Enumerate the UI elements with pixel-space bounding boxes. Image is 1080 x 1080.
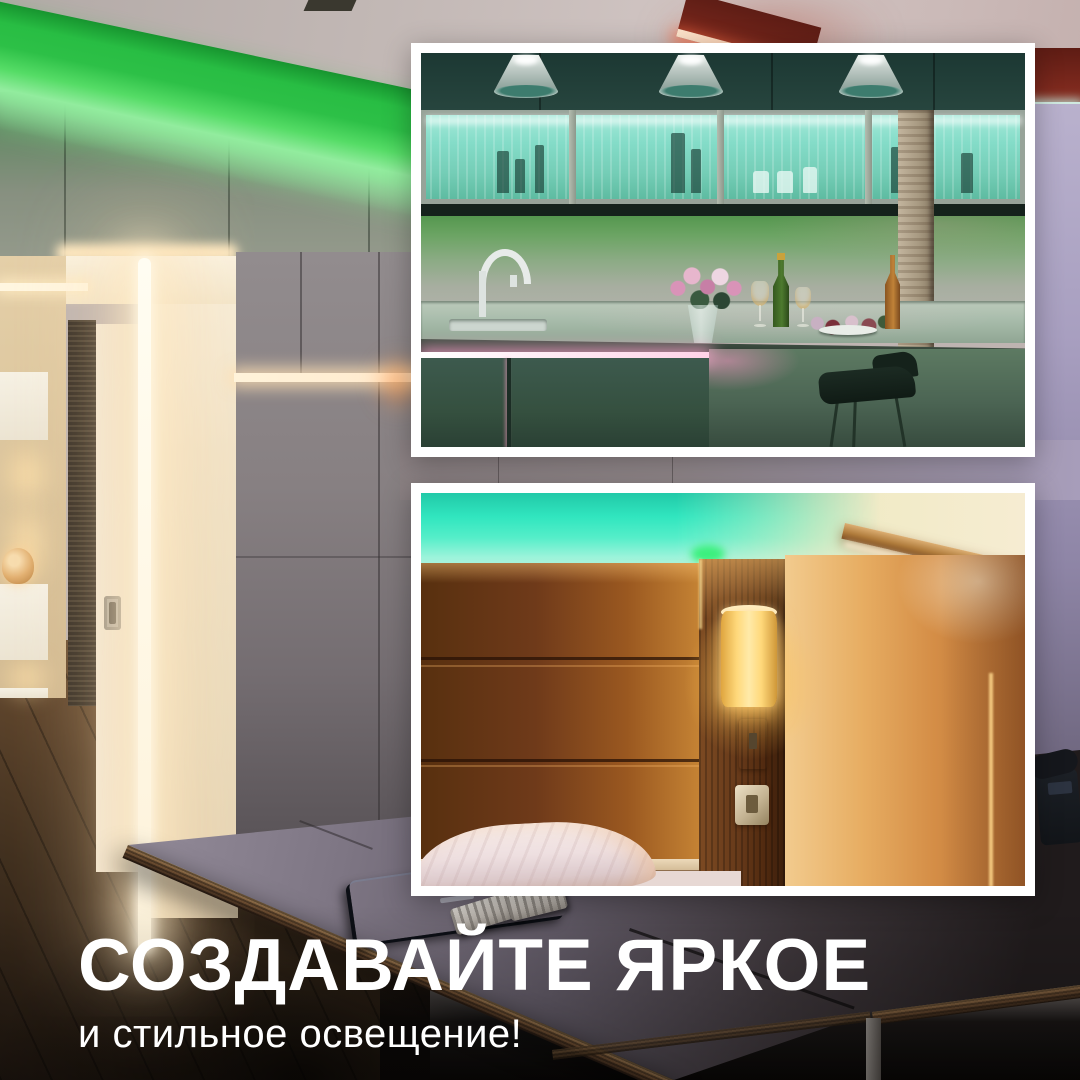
purple-wall: [1028, 104, 1080, 764]
lamp-glare: [859, 55, 883, 65]
glass-stem: [802, 308, 804, 322]
key-card-slot: [749, 733, 757, 749]
lamp-glare: [679, 55, 703, 65]
ceiling-vent: [304, 0, 357, 11]
sink: [449, 319, 547, 331]
pendant-lamp-rim: [494, 85, 558, 98]
ceramic-jar: [753, 171, 769, 193]
dark-textured-column: [68, 320, 96, 706]
desk-phone: [1030, 748, 1080, 860]
kitchen-photo-frame: [411, 43, 1035, 457]
ceramic-jar: [803, 167, 817, 193]
switch-rocker: [746, 795, 758, 813]
glassware: [691, 149, 701, 193]
bedroom-photo-frame: [411, 483, 1035, 896]
shelf-divider: [569, 110, 576, 204]
flower-bouquet: [667, 263, 745, 309]
cabinet-seam: [236, 556, 418, 558]
panel-seam: [933, 53, 935, 110]
hallway-wall: [150, 256, 238, 918]
faucet-spout: [510, 275, 517, 287]
phone-screen: [1048, 781, 1073, 795]
panel-seam: [771, 53, 773, 110]
glass-stem: [759, 305, 761, 322]
caption: СОЗДАВАЙТЕ ЯРКОЕ и стильное освещение!: [78, 929, 871, 1057]
cabinet-seam: [378, 252, 380, 838]
door-handle-recess: [109, 602, 116, 624]
niche-shelf: [0, 584, 48, 660]
red-led-cove: [1028, 48, 1080, 106]
glassware: [497, 151, 509, 193]
ceramic-jar: [777, 171, 793, 193]
tall-gray-cabinets: [236, 252, 418, 838]
shelf-divider: [717, 110, 724, 204]
glass-bowl: [795, 287, 811, 309]
cabinet-seam: [300, 252, 302, 380]
plates: [819, 325, 877, 335]
glassware: [515, 159, 525, 193]
glassware: [535, 145, 544, 193]
niche-shelf: [0, 372, 48, 440]
glassware: [961, 153, 973, 193]
headline: СОЗДАВАЙТЕ ЯРКОЕ: [78, 929, 871, 1003]
subheadline: и стильное освещение!: [78, 1012, 871, 1057]
promo-image: СОЗДАВАЙТЕ ЯРКОЕ и стильное освещение!: [0, 0, 1080, 1080]
faucet-pipe: [479, 271, 486, 317]
phone-base: [1035, 768, 1080, 845]
shelf-board: [421, 204, 1025, 216]
corner-highlight: [989, 673, 993, 886]
glass-bowl: [751, 281, 769, 306]
glass-foot: [754, 324, 767, 327]
pendant-lamp-rim: [839, 85, 903, 98]
bedroom-photo: [421, 493, 1025, 886]
glass-table-lamp: [2, 548, 34, 584]
niche-shelf: [0, 688, 48, 698]
shelf-divider: [865, 110, 872, 204]
pendant-lamp-rim: [659, 85, 723, 98]
glassware: [671, 133, 685, 193]
niche-led-strip: [0, 283, 88, 291]
corner-shadow: [941, 555, 1025, 886]
bottle-cap: [777, 253, 785, 260]
cabinet-seam: [507, 358, 511, 447]
lamp-glare: [514, 55, 538, 65]
kitchen-photo: [421, 53, 1025, 447]
wall-sconce-lamp: [721, 611, 777, 707]
base-cabinets: [421, 358, 709, 447]
wine-glass: [751, 281, 769, 327]
